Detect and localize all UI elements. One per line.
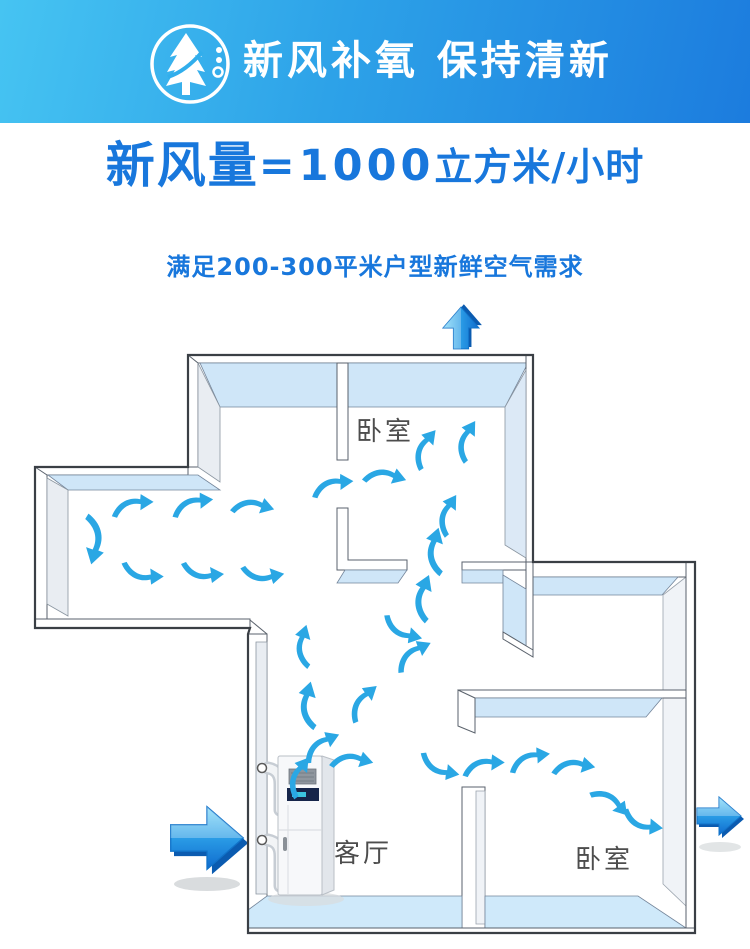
headline-unit: 立方米/小时: [434, 145, 644, 189]
airflow-arrow: [405, 572, 442, 624]
banner-title: 新风补氧 保持清新: [243, 0, 613, 123]
page: 卧室 客厅 卧室: [0, 0, 750, 949]
room-label-bedroom-bottom: 卧室: [575, 845, 633, 875]
airflow-arrow: [293, 680, 324, 731]
airflow-arrow: [110, 493, 155, 518]
room-label-living-room: 客厅: [334, 839, 392, 869]
air-outlet-arrow-right: [697, 797, 744, 852]
airflow-arrow: [78, 513, 110, 566]
headline-value: =1000: [259, 141, 435, 191]
airflow-arrow: [340, 680, 385, 725]
air-outlet-arrow-top: [443, 304, 482, 349]
airflow-arrow: [506, 745, 552, 774]
room-label-bedroom-top: 卧室: [356, 417, 414, 447]
subheadline: 满足200-300平米户型新鲜空气需求: [0, 247, 750, 282]
airflow-arrow: [169, 491, 215, 519]
headline: 新风量=1000立方米/小时: [0, 126, 750, 197]
airflow-arrow: [329, 746, 375, 774]
airflow-arrow: [120, 561, 164, 585]
tree-arrow-icon: [146, 19, 240, 113]
airflow-arrow: [551, 754, 596, 779]
headline-prefix: 新风量: [106, 137, 259, 194]
airflow-arrow: [289, 623, 318, 669]
airflow-arrow: [619, 808, 665, 837]
airflow-arrow: [181, 562, 224, 583]
airflow-arrow: [310, 472, 356, 499]
device-side: [322, 756, 334, 895]
pipe-clamp: [258, 764, 267, 773]
airflow-arrow: [361, 461, 408, 492]
banner: 新风补氧 保持清新: [0, 0, 750, 123]
air-inlet-arrow-left: [171, 807, 249, 891]
pipe-clamp: [258, 836, 267, 845]
device-handle: [283, 837, 287, 851]
airflow-arrow: [240, 562, 285, 587]
airflow-arrow: [461, 754, 505, 778]
airflow-arrow: [230, 492, 276, 521]
airflow-arrow: [428, 491, 467, 539]
airflow-arrow: [447, 417, 486, 465]
fresh-air-unit: [258, 756, 345, 906]
airflow-arrow: [416, 751, 463, 783]
